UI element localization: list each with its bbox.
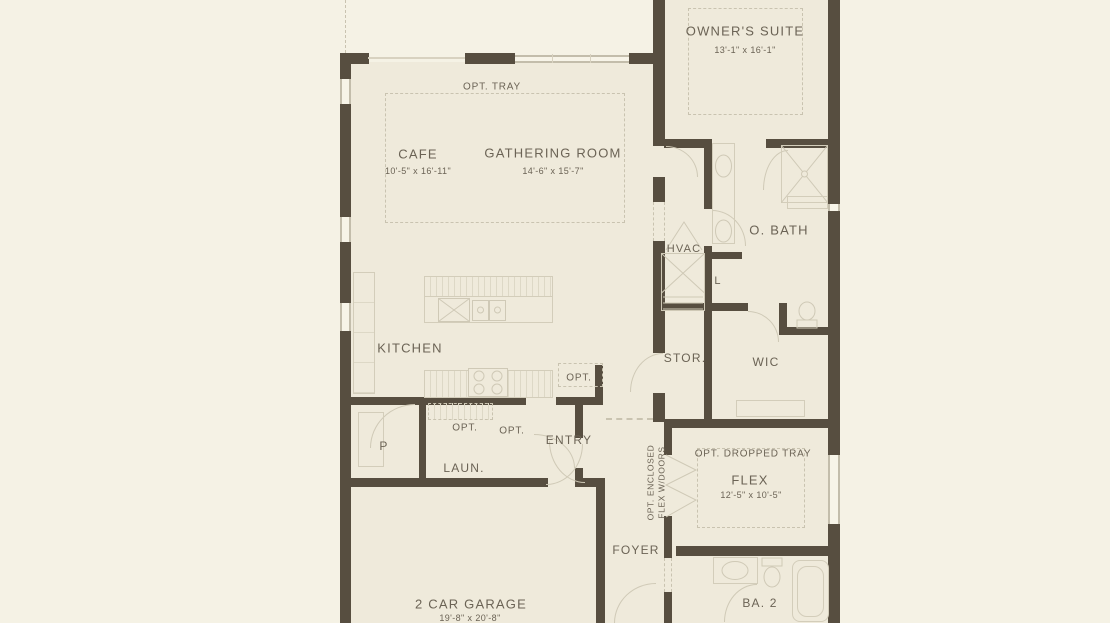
bathtub-inner xyxy=(797,566,824,617)
kitchen-sink-icon xyxy=(472,299,506,322)
sink-icon xyxy=(713,218,734,244)
wall xyxy=(419,397,426,478)
owners-suite-dims: 13'-1" x 16'-1" xyxy=(714,45,775,55)
wic-shelf xyxy=(736,400,805,417)
lanai-dims: 25'-4" x 10'-0" xyxy=(459,0,520,2)
kitchen-wall-cabinets xyxy=(353,272,375,394)
shower-bench xyxy=(787,196,828,209)
window xyxy=(340,303,351,331)
gathering-room-dims: 14'-6" x 15'-7" xyxy=(522,166,583,176)
hvac-label: HVAC xyxy=(667,243,702,255)
laundry-opt-label-2: OPT. xyxy=(499,426,524,437)
stor-label: STOR. xyxy=(664,351,706,365)
dishwasher-icon xyxy=(438,298,470,322)
flex-opt-doors-line2: FLEX W/DOORS xyxy=(656,435,667,531)
wall xyxy=(653,0,665,146)
pantry-label: P xyxy=(379,439,388,453)
wall xyxy=(596,478,605,623)
floor-plan: 25'-4" x 10'-0" OWNER'S SUITE 13'-1" x 1… xyxy=(0,0,1110,623)
wall xyxy=(340,104,351,217)
flex-opt-doors-chevron-icon xyxy=(664,453,700,519)
window xyxy=(828,204,840,211)
obath-label: O. BATH xyxy=(749,223,808,238)
sink-icon xyxy=(718,559,752,582)
wall xyxy=(340,478,548,487)
bathtub xyxy=(792,560,829,622)
wall xyxy=(828,0,840,204)
toilet-icon xyxy=(794,301,820,329)
shower-glass-icon xyxy=(781,145,828,203)
wall xyxy=(704,311,712,419)
gathering-room-label: GATHERING ROOM xyxy=(484,146,621,161)
wall xyxy=(664,419,840,428)
flex-label: FLEX xyxy=(731,473,768,488)
hall-opening xyxy=(606,418,653,420)
wall xyxy=(828,524,840,623)
wall xyxy=(465,53,515,64)
garage-label: 2 CAR GARAGE xyxy=(415,597,527,612)
window xyxy=(340,217,351,242)
flex-dims: 12'-5" x 10'-5" xyxy=(720,490,781,500)
laundry-opt-washer-dryer xyxy=(428,403,493,420)
laundry-opt-label-1: OPT. xyxy=(452,423,477,434)
cafe-dims: 10'-5" x 16'-11" xyxy=(385,166,451,176)
wall xyxy=(629,53,655,64)
island-counter-hatch xyxy=(425,277,552,297)
flex-dropped-tray-outline xyxy=(697,448,805,528)
wall xyxy=(653,393,665,422)
wic-label: WIC xyxy=(753,355,780,369)
wall xyxy=(340,331,351,623)
kitchen-label: KITCHEN xyxy=(377,341,442,356)
sink-icon xyxy=(713,153,734,179)
opt-tray-label: OPT. TRAY xyxy=(463,82,521,93)
cased-opening-line xyxy=(368,57,465,59)
wall xyxy=(664,592,672,623)
wall xyxy=(676,546,840,556)
toilet-icon xyxy=(759,557,785,590)
wall xyxy=(340,242,351,303)
entry-label: ENTRY xyxy=(546,433,592,447)
flex-opt-doors-line1: OPT. ENCLOSED xyxy=(646,435,657,531)
wall xyxy=(704,252,742,259)
kitchen-opt-label: OPT. xyxy=(566,373,591,384)
window-tick xyxy=(552,54,553,63)
sliding-door-window xyxy=(515,55,629,63)
window-tick xyxy=(590,54,591,63)
owners-suite-label: OWNER'S SUITE xyxy=(686,24,804,39)
laundry-label: LAUN. xyxy=(443,461,484,475)
linen-label: L xyxy=(714,275,721,287)
cafe-label: CAFE xyxy=(398,147,437,162)
flex-opt-tray-label: OPT. DROPPED TRAY xyxy=(695,449,812,460)
range-icon xyxy=(468,368,508,397)
foyer-opening xyxy=(664,558,672,592)
window xyxy=(828,455,840,524)
hvac-closet-icon xyxy=(661,253,705,311)
foyer-label: FOYER xyxy=(612,543,659,557)
wall xyxy=(340,53,351,79)
garage-dims: 19'-8" x 20'-8" xyxy=(439,613,500,623)
window xyxy=(340,79,351,104)
lanai-dashed-edge xyxy=(345,0,346,53)
flex-opt-doors-label: OPT. ENCLOSED FLEX W/DOORS xyxy=(646,435,667,531)
wall xyxy=(704,139,712,209)
bath2-label: BA. 2 xyxy=(742,596,777,610)
wall xyxy=(653,177,665,202)
